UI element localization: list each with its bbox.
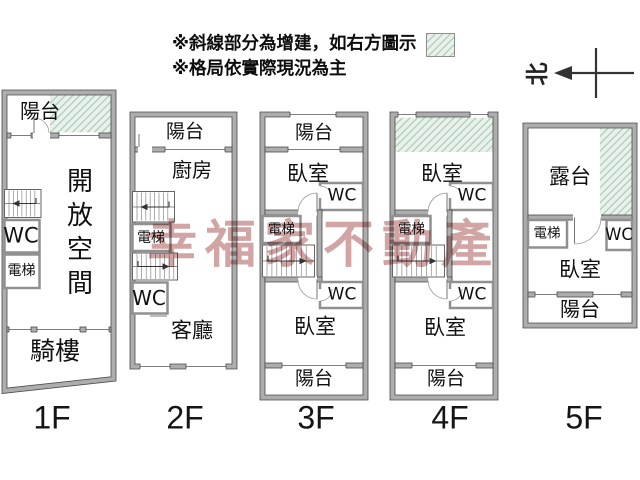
room-label-balcony-bottom-3f: 陽台 — [295, 370, 333, 389]
room-label-balcony-2f: 陽台 — [166, 123, 204, 142]
room-label-living-2f: 客廳 — [171, 321, 213, 342]
compass-north-indicator: 北 — [514, 45, 639, 103]
room-label-kitchen-2f: 廚房 — [172, 160, 212, 180]
legend-note-addition: ※斜線部分為增建，如右方圖示 — [172, 32, 417, 57]
room-label-wc-top-4f: WC — [458, 188, 487, 205]
room-label-balcony-top-3f: 陽台 — [295, 123, 333, 142]
room-label-wc-top-3f: WC — [328, 188, 357, 205]
legend-note-layout: ※格局依實際現況為主 — [172, 57, 347, 82]
room-label-open-space-1f: 開放空間 — [60, 167, 97, 303]
room-label-bedroom-top-4f: 臥室 — [421, 164, 463, 185]
floor-label-3f: 3F — [297, 400, 334, 437]
room-label-wc-1f: WC — [3, 226, 38, 247]
room-label-elevator-5f: 電梯 — [534, 227, 561, 241]
floor-label-1f: 1F — [33, 400, 70, 437]
room-label-wc-5f: WC — [605, 227, 633, 244]
floor-label-5f: 5F — [565, 400, 602, 437]
room-label-terrace-5f: 露台 — [549, 167, 591, 188]
floorplan-5f: 露台 電梯 WC 臥室 陽台 — [523, 123, 637, 328]
room-label-balcony-bottom-4f: 陽台 — [427, 370, 465, 389]
room-label-bedroom-5f: 臥室 — [559, 260, 601, 281]
room-label-balcony-5f: 陽台 — [560, 299, 600, 319]
floor-label-2f: 2F — [166, 400, 203, 437]
room-label-wc-2f: WC — [132, 288, 166, 308]
room-label-balcony-1f: 陽台 — [20, 101, 60, 121]
room-label-bedroom-top-3f: 臥室 — [287, 164, 329, 185]
agency-watermark: 幸福家不動產 — [146, 203, 500, 277]
room-label-arcade-1f: 騎樓 — [30, 339, 80, 364]
room-label-wc-bottom-4f: WC — [458, 287, 487, 304]
room-label-wc-bottom-3f: WC — [328, 287, 357, 304]
legend: ※斜線部分為增建，如右方圖示 ※格局依實際現況為主 — [172, 32, 455, 83]
room-label-bedroom-bottom-3f: 臥室 — [294, 317, 336, 338]
compass-north-label: 北 — [525, 63, 551, 86]
hatch-legend-swatch — [426, 33, 455, 57]
room-label-bedroom-bottom-4f: 臥室 — [424, 318, 466, 339]
floorplan-1f: 陽台 開放空間 WC 電梯 騎樓 — [2, 90, 116, 395]
floorplan-sheet: ※斜線部分為增建，如右方圖示 ※格局依實際現況為主 北 — [0, 0, 640, 480]
compass-arrowhead-icon — [554, 66, 572, 80]
room-label-elevator-1f: 電梯 — [8, 264, 36, 278]
floor-label-4f: 4F — [431, 400, 468, 437]
